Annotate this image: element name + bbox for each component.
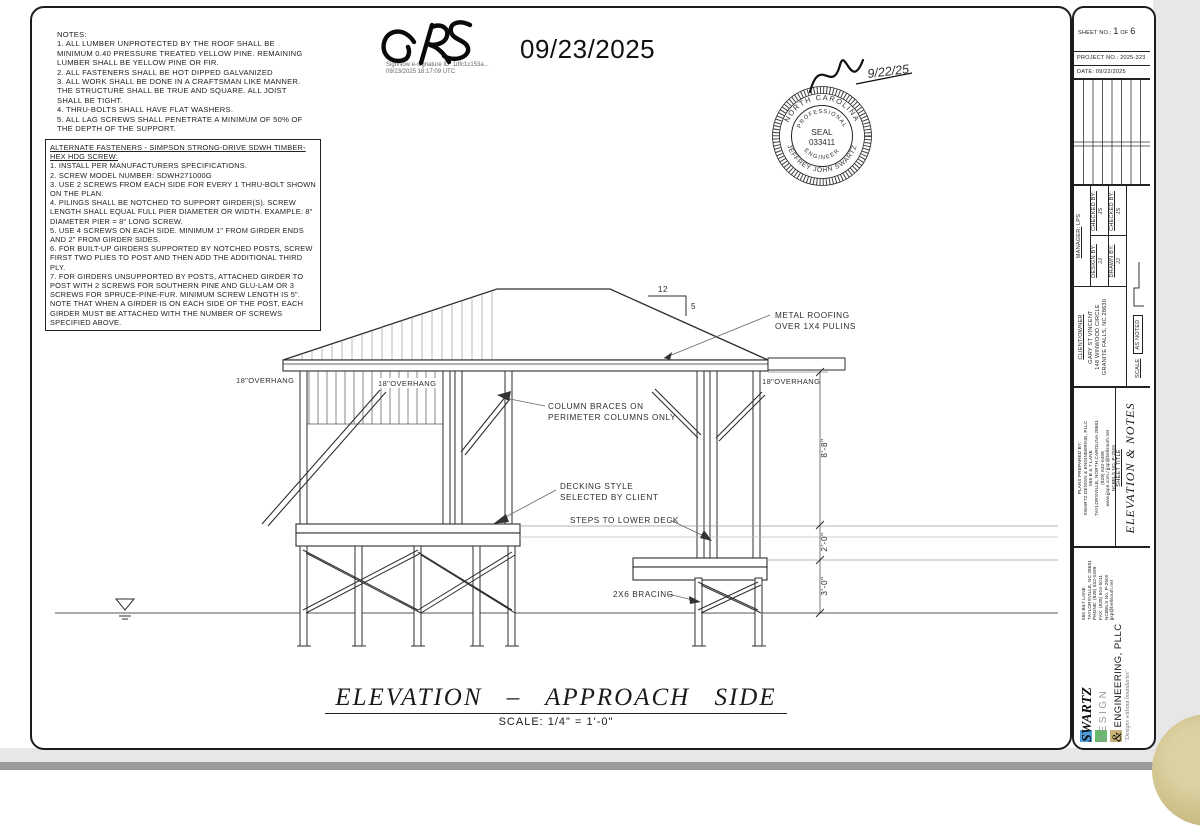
- sheet-title-label: SHEET TITLE: [1116, 388, 1123, 548]
- drawn-by-cell: DRAWN BY: JJ: [1109, 236, 1127, 286]
- manager-value: LPS: [1076, 214, 1082, 225]
- note-item: 5. ALL LAG SCREWS SHALL PENETRATE A MINI…: [57, 115, 307, 134]
- fastener-item: 3. USE 2 SCREWS FROM EACH SIDE FOR EVERY…: [50, 180, 316, 198]
- signed-date: 09/23/2025: [520, 34, 655, 65]
- view-title-text: ELEVATION – APPROACH SIDE: [325, 684, 786, 714]
- fastener-item: 6. FOR BUILT-UP GIRDERS SUPPORTED BY NOT…: [50, 244, 316, 272]
- fastener-item: 4. PILINGS SHALL BE NOTCHED TO SUPPORT G…: [50, 198, 316, 226]
- esignature-id: SignNow e-signature ID: 1dfc1c153a...: [386, 62, 489, 69]
- scale-label: SCALE: [1135, 359, 1142, 378]
- checked-by-cell-1: CHECKED BY: JS: [1091, 186, 1109, 236]
- checked-value: JS: [1098, 186, 1105, 236]
- scale-step-symbol: [1130, 258, 1146, 310]
- note-item: 1. ALL LUMBER UNPROTECTED BY THE ROOF SH…: [57, 39, 307, 67]
- drawn-label: DRAWN BY:: [1109, 236, 1116, 286]
- firm-logo: SWARTZ DESIGN & ENGINEERING, PLLC "Desig…: [1078, 624, 1131, 742]
- client-address-2: GRANITE FALLS, NC 28630: [1102, 287, 1109, 387]
- fastener-item: 2. SCREW MODEL NUMBER: SDWH271000G: [50, 171, 316, 180]
- client-address-1: 148 WINWOOD CIRCLE: [1095, 287, 1102, 387]
- client-owner-label: CLIENT/OWNER: [1078, 287, 1085, 387]
- general-notes: NOTES: 1. ALL LUMBER UNPROTECTED BY THE …: [57, 30, 307, 133]
- note-item: 4. THRU-BOLTS SHALL HAVE FLAT WASHERS.: [57, 105, 307, 114]
- sheet-title-value: ELEVATION & NOTES: [1123, 388, 1138, 548]
- revision-grid: [1074, 80, 1150, 186]
- esignature-timestamp: 09/23/2025 18:17:09 UTC: [386, 69, 489, 76]
- sheet-total-value: 6: [1130, 26, 1135, 36]
- note-item: 2. ALL FASTENERS SHALL BE HOT DIPPED GAL…: [57, 68, 307, 77]
- note-item: 3. ALL WORK SHALL BE DONE IN A CRAFTSMAN…: [57, 77, 307, 105]
- checked-value-2: JS: [1116, 186, 1123, 236]
- logo-swartz: SWARTZ: [1080, 687, 1095, 742]
- logo-engineering: ENGINEERING, PLLC: [1113, 623, 1124, 727]
- sheet-number-box: SHEET NO.: 1 OF 6: [1074, 8, 1150, 52]
- fastener-item: 5. USE 4 SCREWS ON EACH SIDE. MINIMUM 1"…: [50, 226, 316, 244]
- drawn-value: JJ: [1116, 236, 1123, 286]
- logo-ampersand: &: [1109, 732, 1124, 742]
- view-title-block: ELEVATION – APPROACH SIDE SCALE: 1/4" = …: [306, 684, 806, 728]
- firm-address: 565 B&T LANE TAYLORSVILLE, NC 28681 PHON…: [1078, 560, 1131, 620]
- fastener-item: 1. INSTALL PER MANUFACTURERS SPECIFICATI…: [50, 161, 316, 170]
- manager-cell: MANAGER: LPS: [1074, 186, 1091, 286]
- logo-tagline: "Designs without boundaries": [1125, 624, 1131, 742]
- checked-label: CHECKED BY:: [1091, 186, 1098, 236]
- logo-design: DESIGN: [1098, 689, 1109, 742]
- client-owner-cell: CLIENT/OWNER GARY ST VINCENT 148 WINWOOD…: [1074, 286, 1127, 386]
- checked-by-cell-2: CHECKED BY: JS: [1109, 186, 1127, 236]
- alternate-fasteners-notes: ALTERNATE FASTENERS - SIMPSON STRONG-DRI…: [45, 139, 321, 331]
- sheet-no-label: SHEET NO.:: [1078, 30, 1112, 36]
- manager-label: MANAGER:: [1076, 227, 1082, 258]
- canvas-gray-right: [1153, 0, 1200, 770]
- prepared-by-cell: PLANS PREPARED BY: SWARTZ DESIGN & ENGIN…: [1074, 386, 1116, 546]
- firm-address-line: jjsp@bellsouth.net: [1109, 560, 1115, 620]
- checked-label-2: CHECKED BY:: [1109, 186, 1116, 236]
- client-name: GARY ST VINCENT: [1088, 287, 1095, 387]
- sheet-title-cell: SHEET TITLE ELEVATION & NOTES: [1116, 386, 1150, 546]
- notes-title: NOTES:: [57, 30, 307, 39]
- firm-logo-cell: SWARTZ DESIGN & ENGINEERING, PLLC "Desig…: [1074, 546, 1150, 744]
- esignature-meta: SignNow e-signature ID: 1dfc1c153a... 09…: [386, 62, 489, 76]
- fastener-item: 7. FOR GIRDERS UNSUPPORTED BY POSTS, ATT…: [50, 272, 316, 327]
- fasteners-title: ALTERNATE FASTENERS - SIMPSON STRONG-DRI…: [50, 143, 316, 161]
- scale-value: AS NOTED: [1133, 315, 1144, 353]
- design-label: DESIGN BY:: [1091, 236, 1098, 286]
- date-box: DATE: 09/22/2025: [1074, 66, 1150, 80]
- sheet-of-label: OF: [1120, 30, 1128, 36]
- design-value: JJ: [1098, 236, 1105, 286]
- viewer-bottom-bar: [0, 762, 1200, 770]
- sheet-no-value: 1: [1113, 26, 1118, 36]
- design-by-cell: DESIGN BY: JJ: [1091, 236, 1109, 286]
- project-number-box: PROJECT NO.: 2025-323: [1074, 52, 1150, 66]
- view-scale-text: SCALE: 1/4" = 1'-0": [306, 716, 806, 728]
